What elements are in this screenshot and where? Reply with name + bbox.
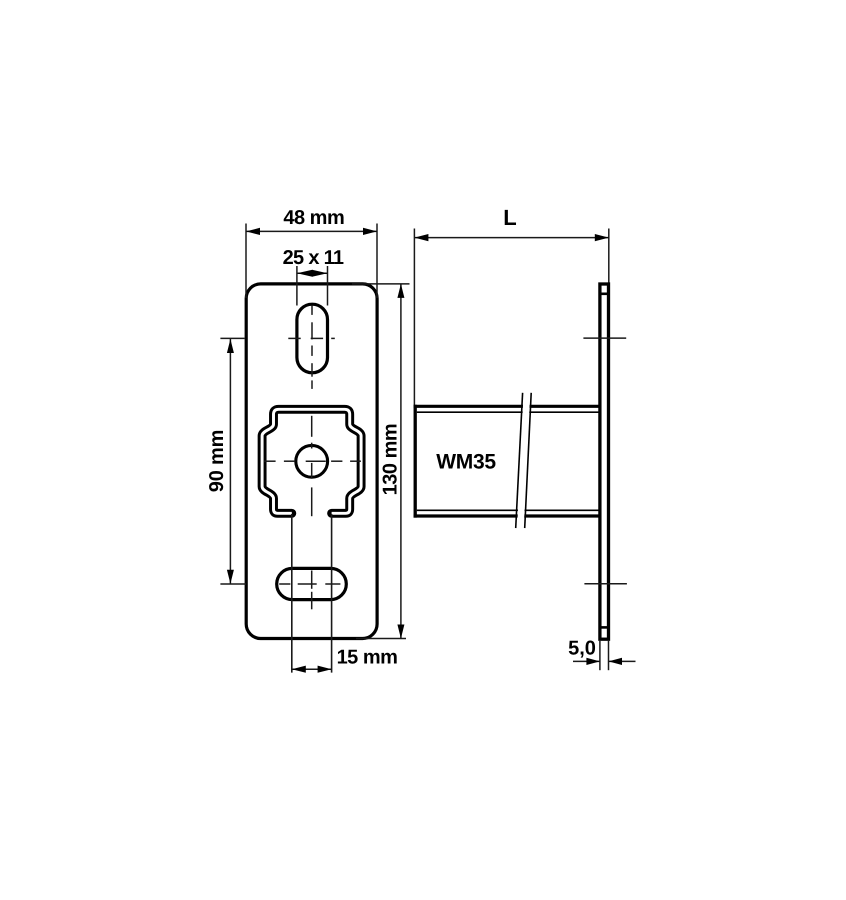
svg-text:48 mm: 48 mm [283, 207, 344, 229]
svg-text:WM35: WM35 [436, 451, 496, 474]
svg-text:15 mm: 15 mm [337, 647, 398, 669]
svg-text:5,0: 5,0 [568, 638, 596, 660]
svg-text:90 mm: 90 mm [206, 430, 228, 492]
svg-text:130 mm: 130 mm [380, 424, 402, 496]
svg-text:L: L [503, 205, 516, 230]
svg-text:25 x 11: 25 x 11 [283, 247, 344, 269]
